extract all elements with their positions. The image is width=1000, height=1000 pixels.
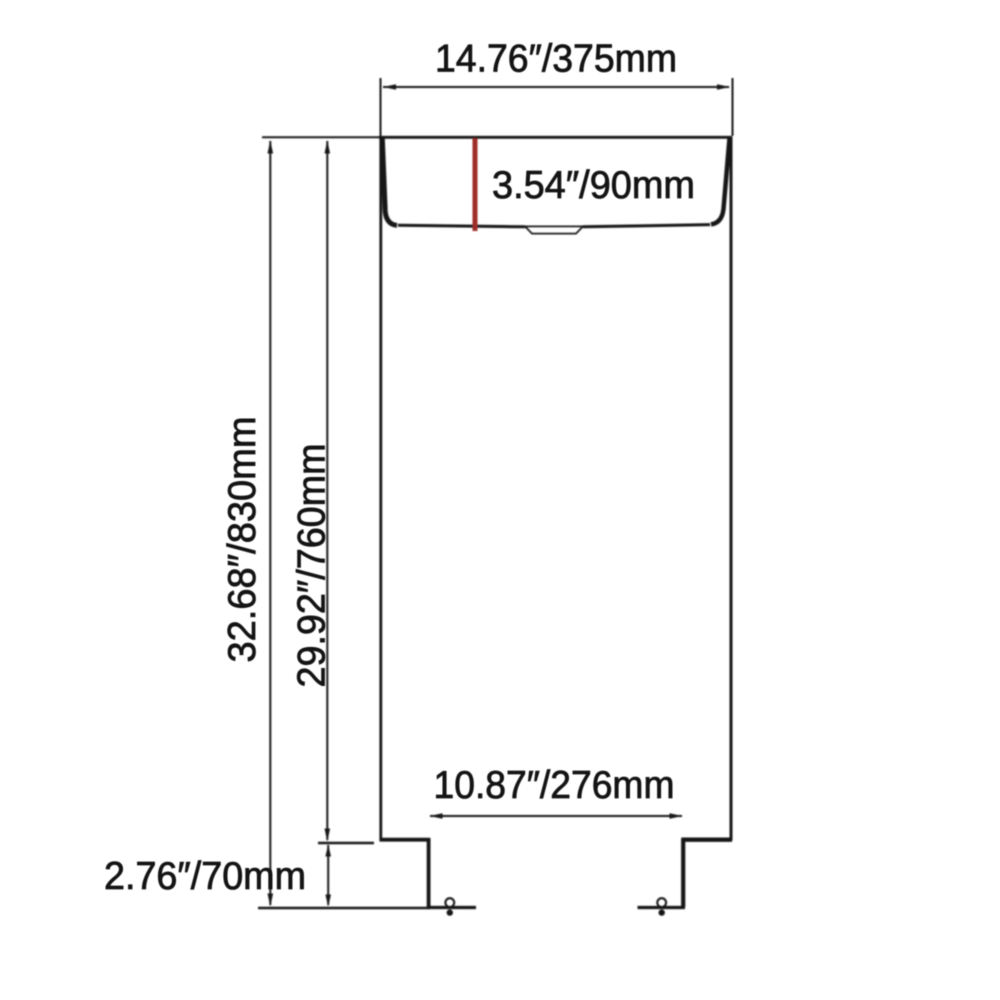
svg-text:29.92″/760mm: 29.92″/760mm	[291, 444, 334, 688]
svg-text:2.76″/70mm: 2.76″/70mm	[104, 855, 306, 898]
svg-text:10.87″/276mm: 10.87″/276mm	[434, 764, 675, 807]
svg-text:14.76″/375mm: 14.76″/375mm	[435, 38, 677, 81]
svg-text:3.54″/90mm: 3.54″/90mm	[492, 164, 695, 207]
svg-text:32.68″/830mm: 32.68″/830mm	[221, 417, 264, 663]
